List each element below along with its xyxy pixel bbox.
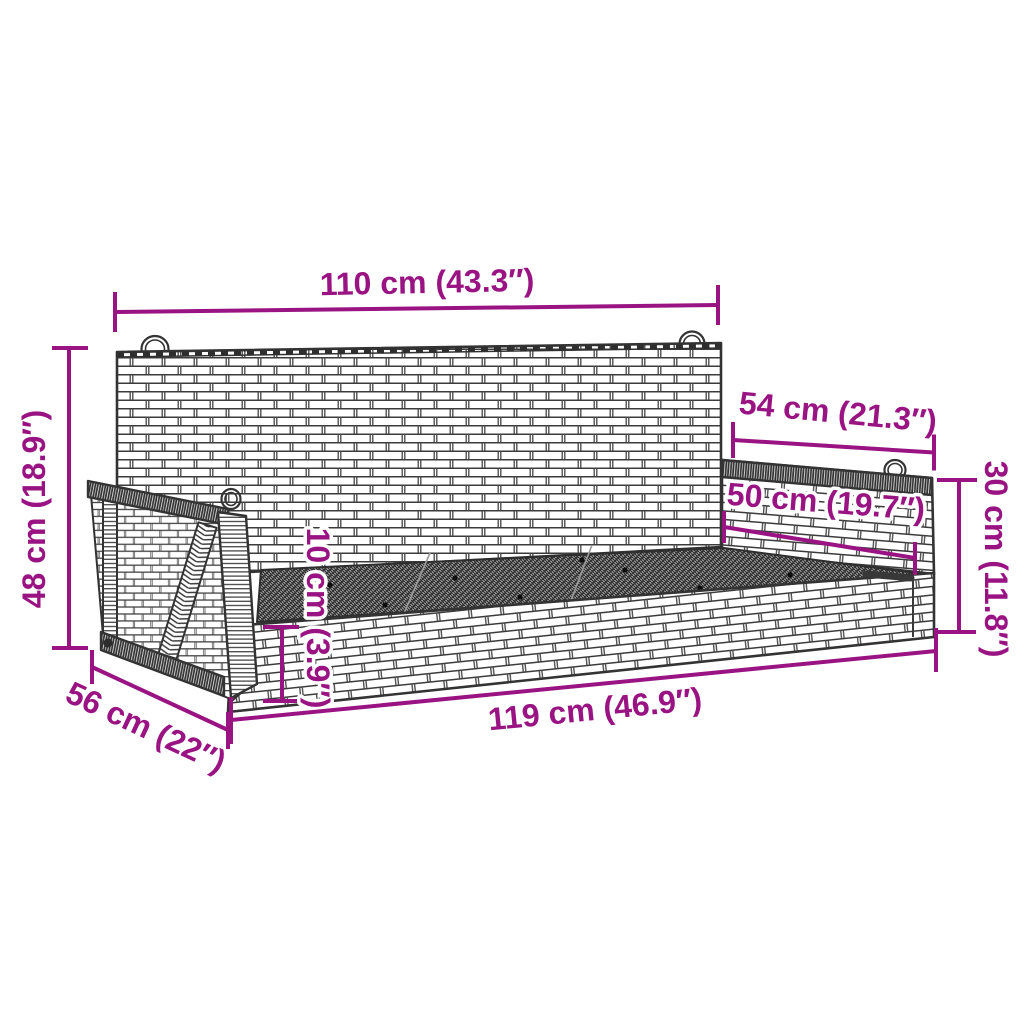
svg-text:110 cm (43.3″): 110 cm (43.3″) (319, 262, 534, 302)
svg-text:30 cm (11.8″): 30 cm (11.8″) (978, 461, 1014, 658)
svg-text:48 cm (18.9″): 48 cm (18.9″) (16, 410, 52, 609)
svg-text:10 cm (3.9″): 10 cm (3.9″) (300, 528, 336, 709)
